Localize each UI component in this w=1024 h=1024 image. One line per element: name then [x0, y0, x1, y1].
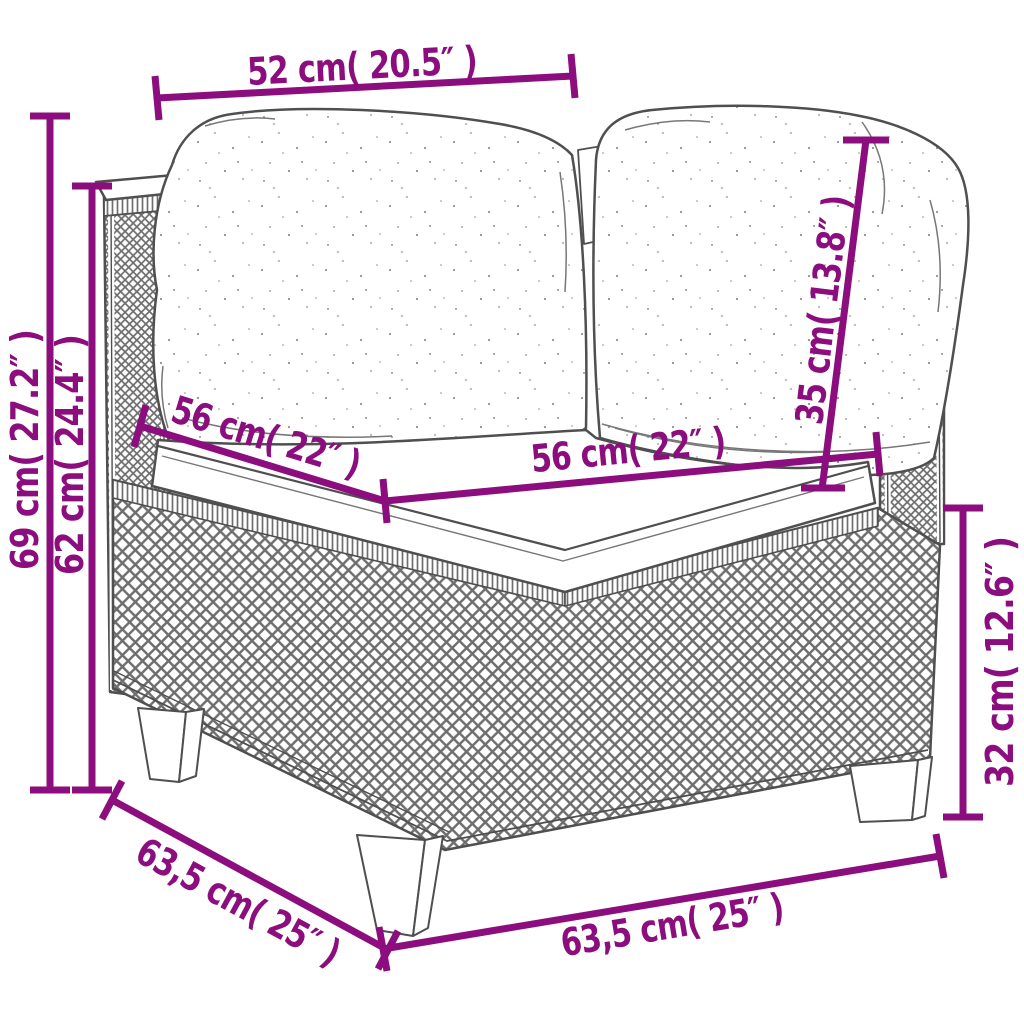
dim-base-depth-label: 63,5 cm( 25″ ): [129, 829, 348, 975]
right-back-cushion: [593, 106, 968, 475]
product-dimension-diagram: 52 cm( 20.5″ ) 69 cm( 27.2″ ) 62 cm( 24.…: [0, 0, 1024, 1024]
dim-cushion-width-top: 52 cm( 20.5″ ): [155, 38, 575, 120]
dim-base-depth: 63,5 cm( 25″ ): [102, 781, 398, 975]
right-leg: [850, 757, 932, 822]
front-leg: [357, 835, 443, 936]
dim-total-height-label: 69 cm( 27.2″ ): [3, 330, 47, 570]
dim-arm-height: 62 cm( 24.4″ ): [48, 186, 112, 790]
dim-base-width-label: 63,5 cm( 25″ ): [557, 885, 786, 966]
dim-base-height: 32 cm( 12.6″ ): [943, 508, 1022, 817]
dim-base-height-label: 32 cm( 12.6″ ): [978, 537, 1022, 787]
left-leg: [138, 708, 204, 782]
dim-base-width: 63,5 cm( 25″ ): [379, 834, 944, 971]
dim-arm-height-label: 62 cm( 24.4″ ): [48, 335, 92, 575]
diagram-canvas: 52 cm( 20.5″ ) 69 cm( 27.2″ ) 62 cm( 24.…: [0, 0, 1024, 1024]
